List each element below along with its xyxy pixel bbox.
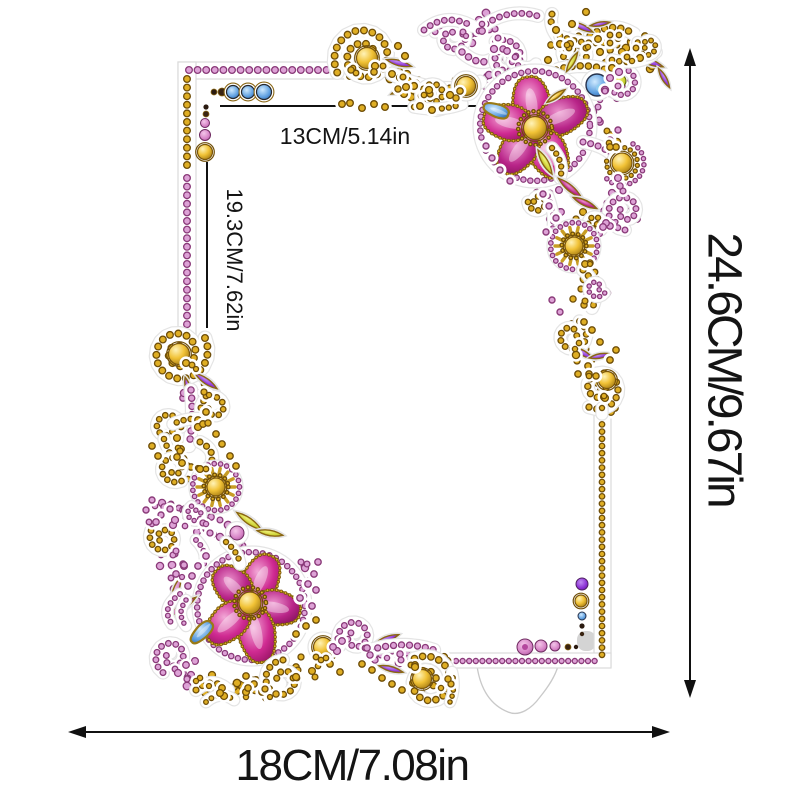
svg-text:24.6CM/9.67in: 24.6CM/9.67in — [697, 232, 750, 505]
svg-text:18CM/7.08in: 18CM/7.08in — [236, 741, 469, 790]
svg-text:19.3CM/7.62in: 19.3CM/7.62in — [222, 188, 247, 331]
svg-text:13CM/5.14in: 13CM/5.14in — [280, 123, 410, 149]
